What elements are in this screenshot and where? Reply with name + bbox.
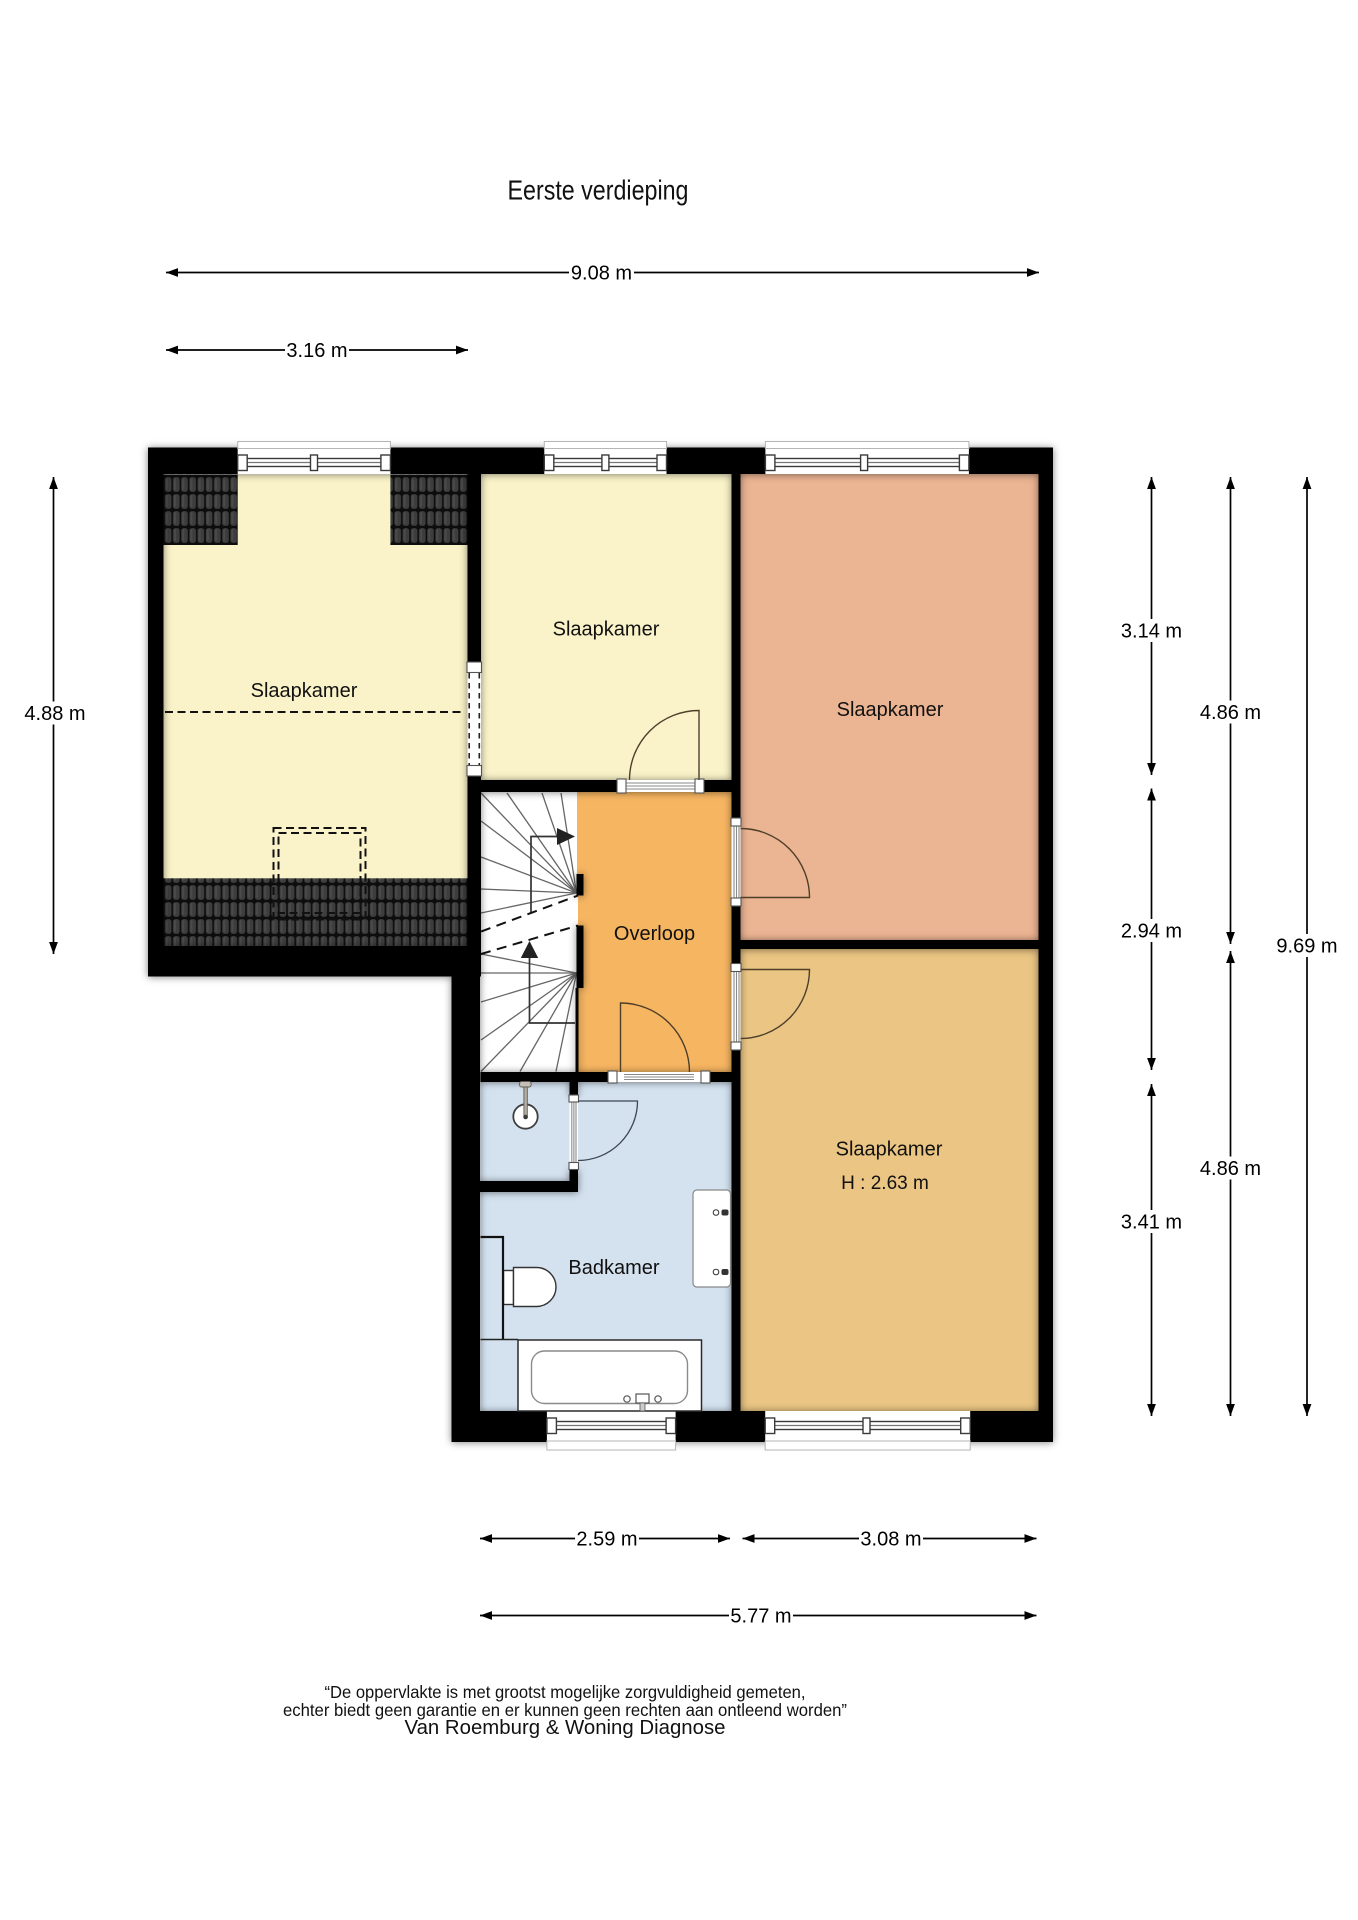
svg-text:2.59 m: 2.59 m (576, 1529, 637, 1551)
svg-text:Badkamer: Badkamer (568, 1257, 659, 1279)
svg-text:H : 2.63 m: H : 2.63 m (841, 1173, 929, 1194)
svg-text:5.77 m: 5.77 m (730, 1606, 791, 1628)
svg-text:3.08 m: 3.08 m (860, 1529, 921, 1551)
svg-text:Slaapkamer: Slaapkamer (251, 680, 358, 702)
svg-text:Slaapkamer: Slaapkamer (836, 1139, 943, 1161)
svg-text:Van Roemburg & Woning Diagnose: Van Roemburg & Woning Diagnose (405, 1717, 726, 1739)
svg-text:9.08 m: 9.08 m (571, 263, 632, 285)
svg-text:3.14 m: 3.14 m (1121, 621, 1182, 643)
svg-text:“De oppervlakte is met grootst: “De oppervlakte is met grootst mogelijke… (325, 1682, 806, 1702)
svg-text:Overloop: Overloop (614, 923, 695, 945)
svg-text:9.69 m: 9.69 m (1276, 936, 1337, 958)
svg-text:Slaapkamer: Slaapkamer (837, 699, 944, 721)
svg-text:4.86 m: 4.86 m (1200, 702, 1261, 724)
svg-text:Eerste verdieping: Eerste verdieping (508, 175, 689, 206)
svg-text:2.94 m: 2.94 m (1121, 921, 1182, 943)
svg-text:4.88 m: 4.88 m (24, 703, 85, 725)
svg-text:3.16 m: 3.16 m (286, 340, 347, 362)
svg-text:3.41 m: 3.41 m (1121, 1212, 1182, 1234)
svg-text:Slaapkamer: Slaapkamer (553, 619, 660, 641)
svg-text:4.86 m: 4.86 m (1200, 1158, 1261, 1180)
